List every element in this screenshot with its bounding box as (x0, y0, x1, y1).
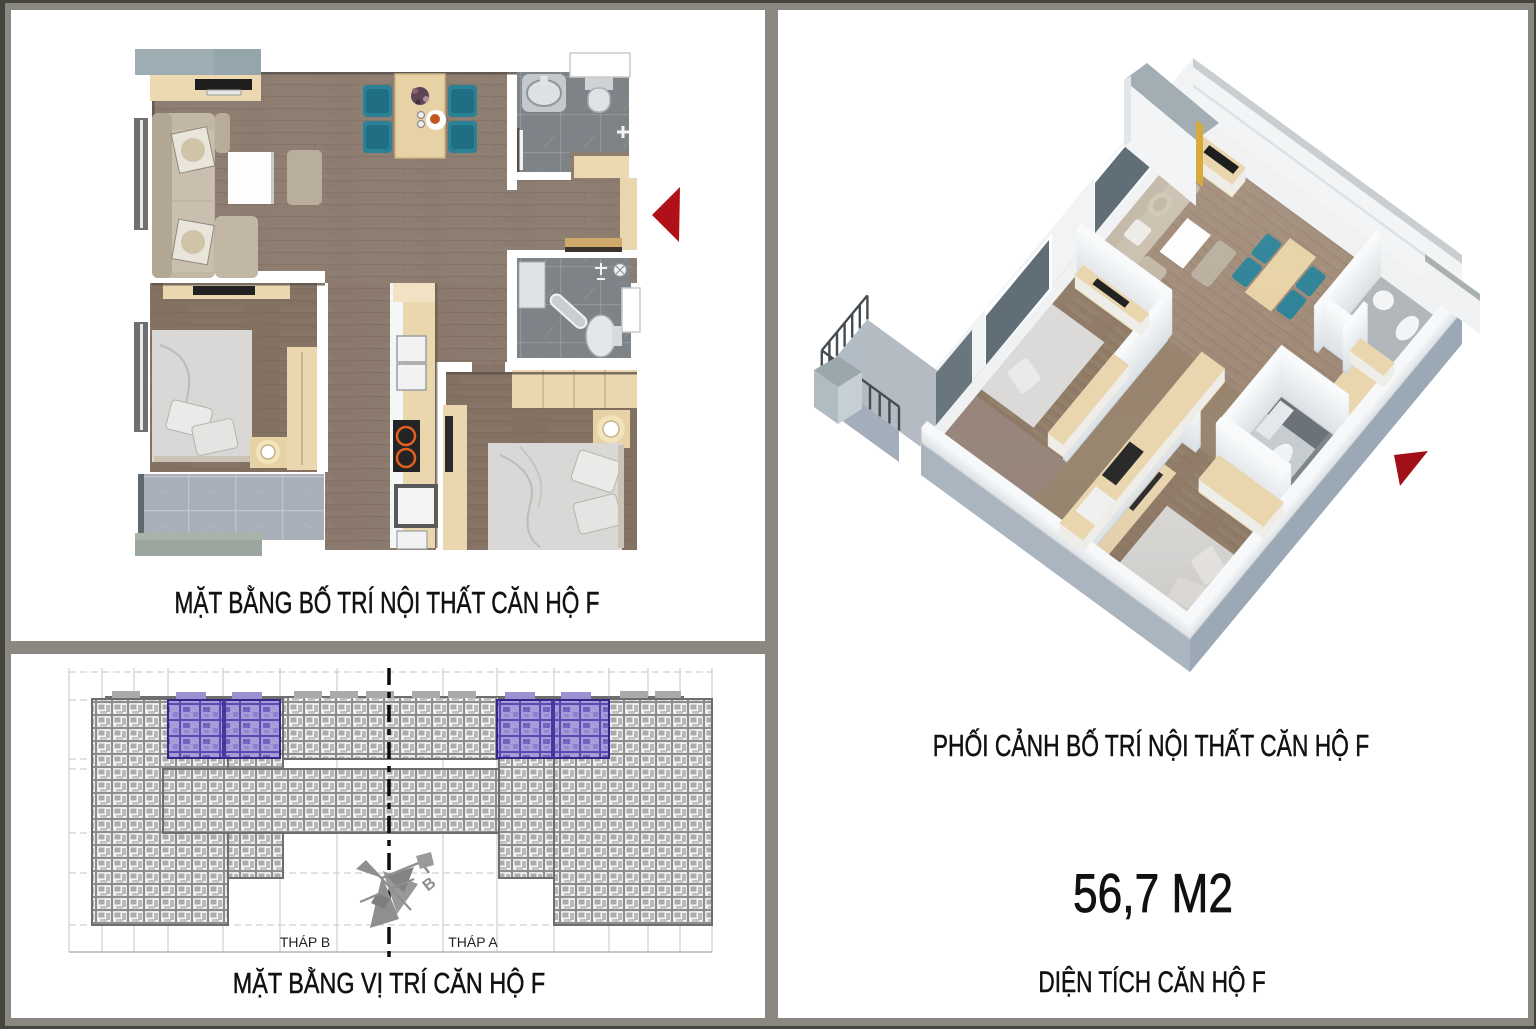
svg-text:THÁP A: THÁP A (448, 934, 498, 950)
svg-text:PHỐI CẢNH BỐ TRÍ NỘI THẤT CĂN: PHỐI CẢNH BỐ TRÍ NỘI THẤT CĂN HỘ F (933, 726, 1370, 762)
svg-text:DIỆN TÍCH CĂN HỘ F: DIỆN TÍCH CĂN HỘ F (1038, 965, 1265, 999)
svg-text:B: B (420, 874, 440, 895)
svg-text:MẶT BẰNG VỊ TRÍ CĂN HỘ F: MẶT BẰNG VỊ TRÍ CĂN HỘ F (233, 967, 545, 1000)
svg-text:56,7 M2: 56,7 M2 (1073, 862, 1233, 924)
svg-text:MẶT BẰNG BỐ TRÍ NỘI THẤT CĂN H: MẶT BẰNG BỐ TRÍ NỘI THẤT CĂN HỘ F (175, 583, 600, 620)
svg-text:THÁP B: THÁP B (280, 934, 330, 950)
